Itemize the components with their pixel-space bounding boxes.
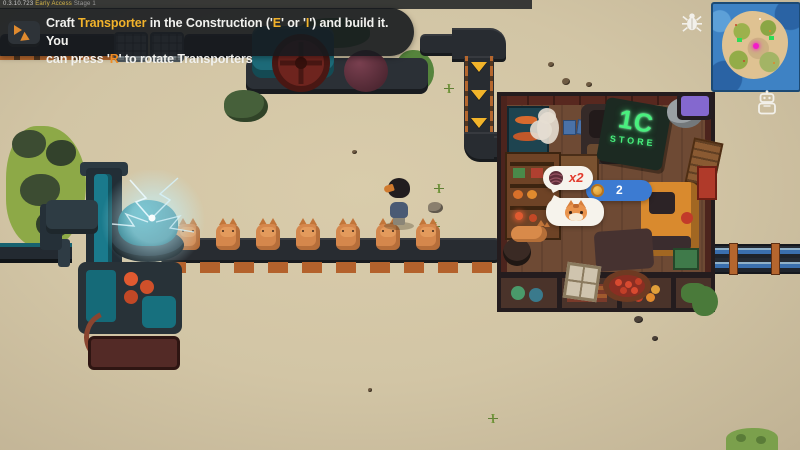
store-cat[interactable] [511,220,547,242]
conveyor-cat[interactable] [256,220,280,250]
transporter-icon [8,21,40,47]
tesla-machine[interactable] [40,160,190,375]
shelf-items [697,166,717,200]
conveyor-cats[interactable] [176,212,486,252]
grass-tuft [444,84,454,93]
store-post [671,274,676,310]
cable-bundle [713,244,800,274]
trade-bubble-yarn[interactable]: x2 [543,166,593,190]
minimap[interactable] [711,2,800,92]
store-post [557,274,562,310]
open-door[interactable] [563,262,602,302]
grass-tuft [434,184,444,193]
tutorial-banner: Craft Transporter in the Construction ('… [0,8,414,56]
table [594,228,655,272]
pebble [562,78,570,85]
robot-icon [755,90,779,116]
cat-face-icon [565,202,587,221]
pebble [634,316,643,323]
card-item [563,120,576,135]
robot-helper-button[interactable] [755,90,779,121]
smoke-puff [538,108,556,124]
store-sign: 1C STORE [596,97,672,171]
pebble [652,336,658,341]
version-text: 0.3.10.723 Early Access Stage 1 [3,1,96,8]
belt-arrow-down-icon [471,62,487,72]
trade-bubble-cat[interactable] [546,198,604,226]
purple-monitor[interactable] [677,92,713,120]
pebble [586,82,592,87]
conveyor-cat[interactable] [216,220,240,250]
player-marker-dot [753,43,759,49]
gift-box [673,248,699,270]
electric-arcs [98,166,208,266]
yarn-ball-icon [548,170,564,186]
conveyor-cat[interactable] [416,220,440,250]
bush [726,428,778,450]
conveyor-belt-vertical[interactable] [464,56,494,136]
bug-report-button[interactable] [681,12,703,37]
yarn-count-label: x2 [569,170,583,185]
plant [692,286,718,316]
player-character[interactable] [382,176,416,230]
grass-tuft [488,414,498,423]
cable-clamp [729,243,738,275]
bush [224,90,268,122]
conveyor-cat[interactable] [336,220,360,250]
fruit-basin [603,270,651,302]
store-building[interactable]: 1C STORE [497,92,715,312]
conveyor-cat[interactable] [296,220,320,250]
minimap-poi [737,38,742,42]
cable-clamp [771,243,780,275]
pebble [368,388,372,392]
price-label: 2 [616,183,623,197]
barrel [503,238,531,266]
belt-arrow-down-icon [471,118,487,128]
conveyor-supports [166,262,496,273]
tutorial-text: Craft Transporter in the Construction ('… [46,14,406,68]
game-viewport: 1C STORE [0,0,800,450]
price-pill[interactable]: 2 [586,180,652,201]
pebble [352,150,357,154]
pebble [548,62,554,67]
minimap-poi [769,36,774,40]
coin-icon [591,184,604,197]
belt-arrow-down-icon [471,90,487,100]
bug-icon [681,12,703,32]
